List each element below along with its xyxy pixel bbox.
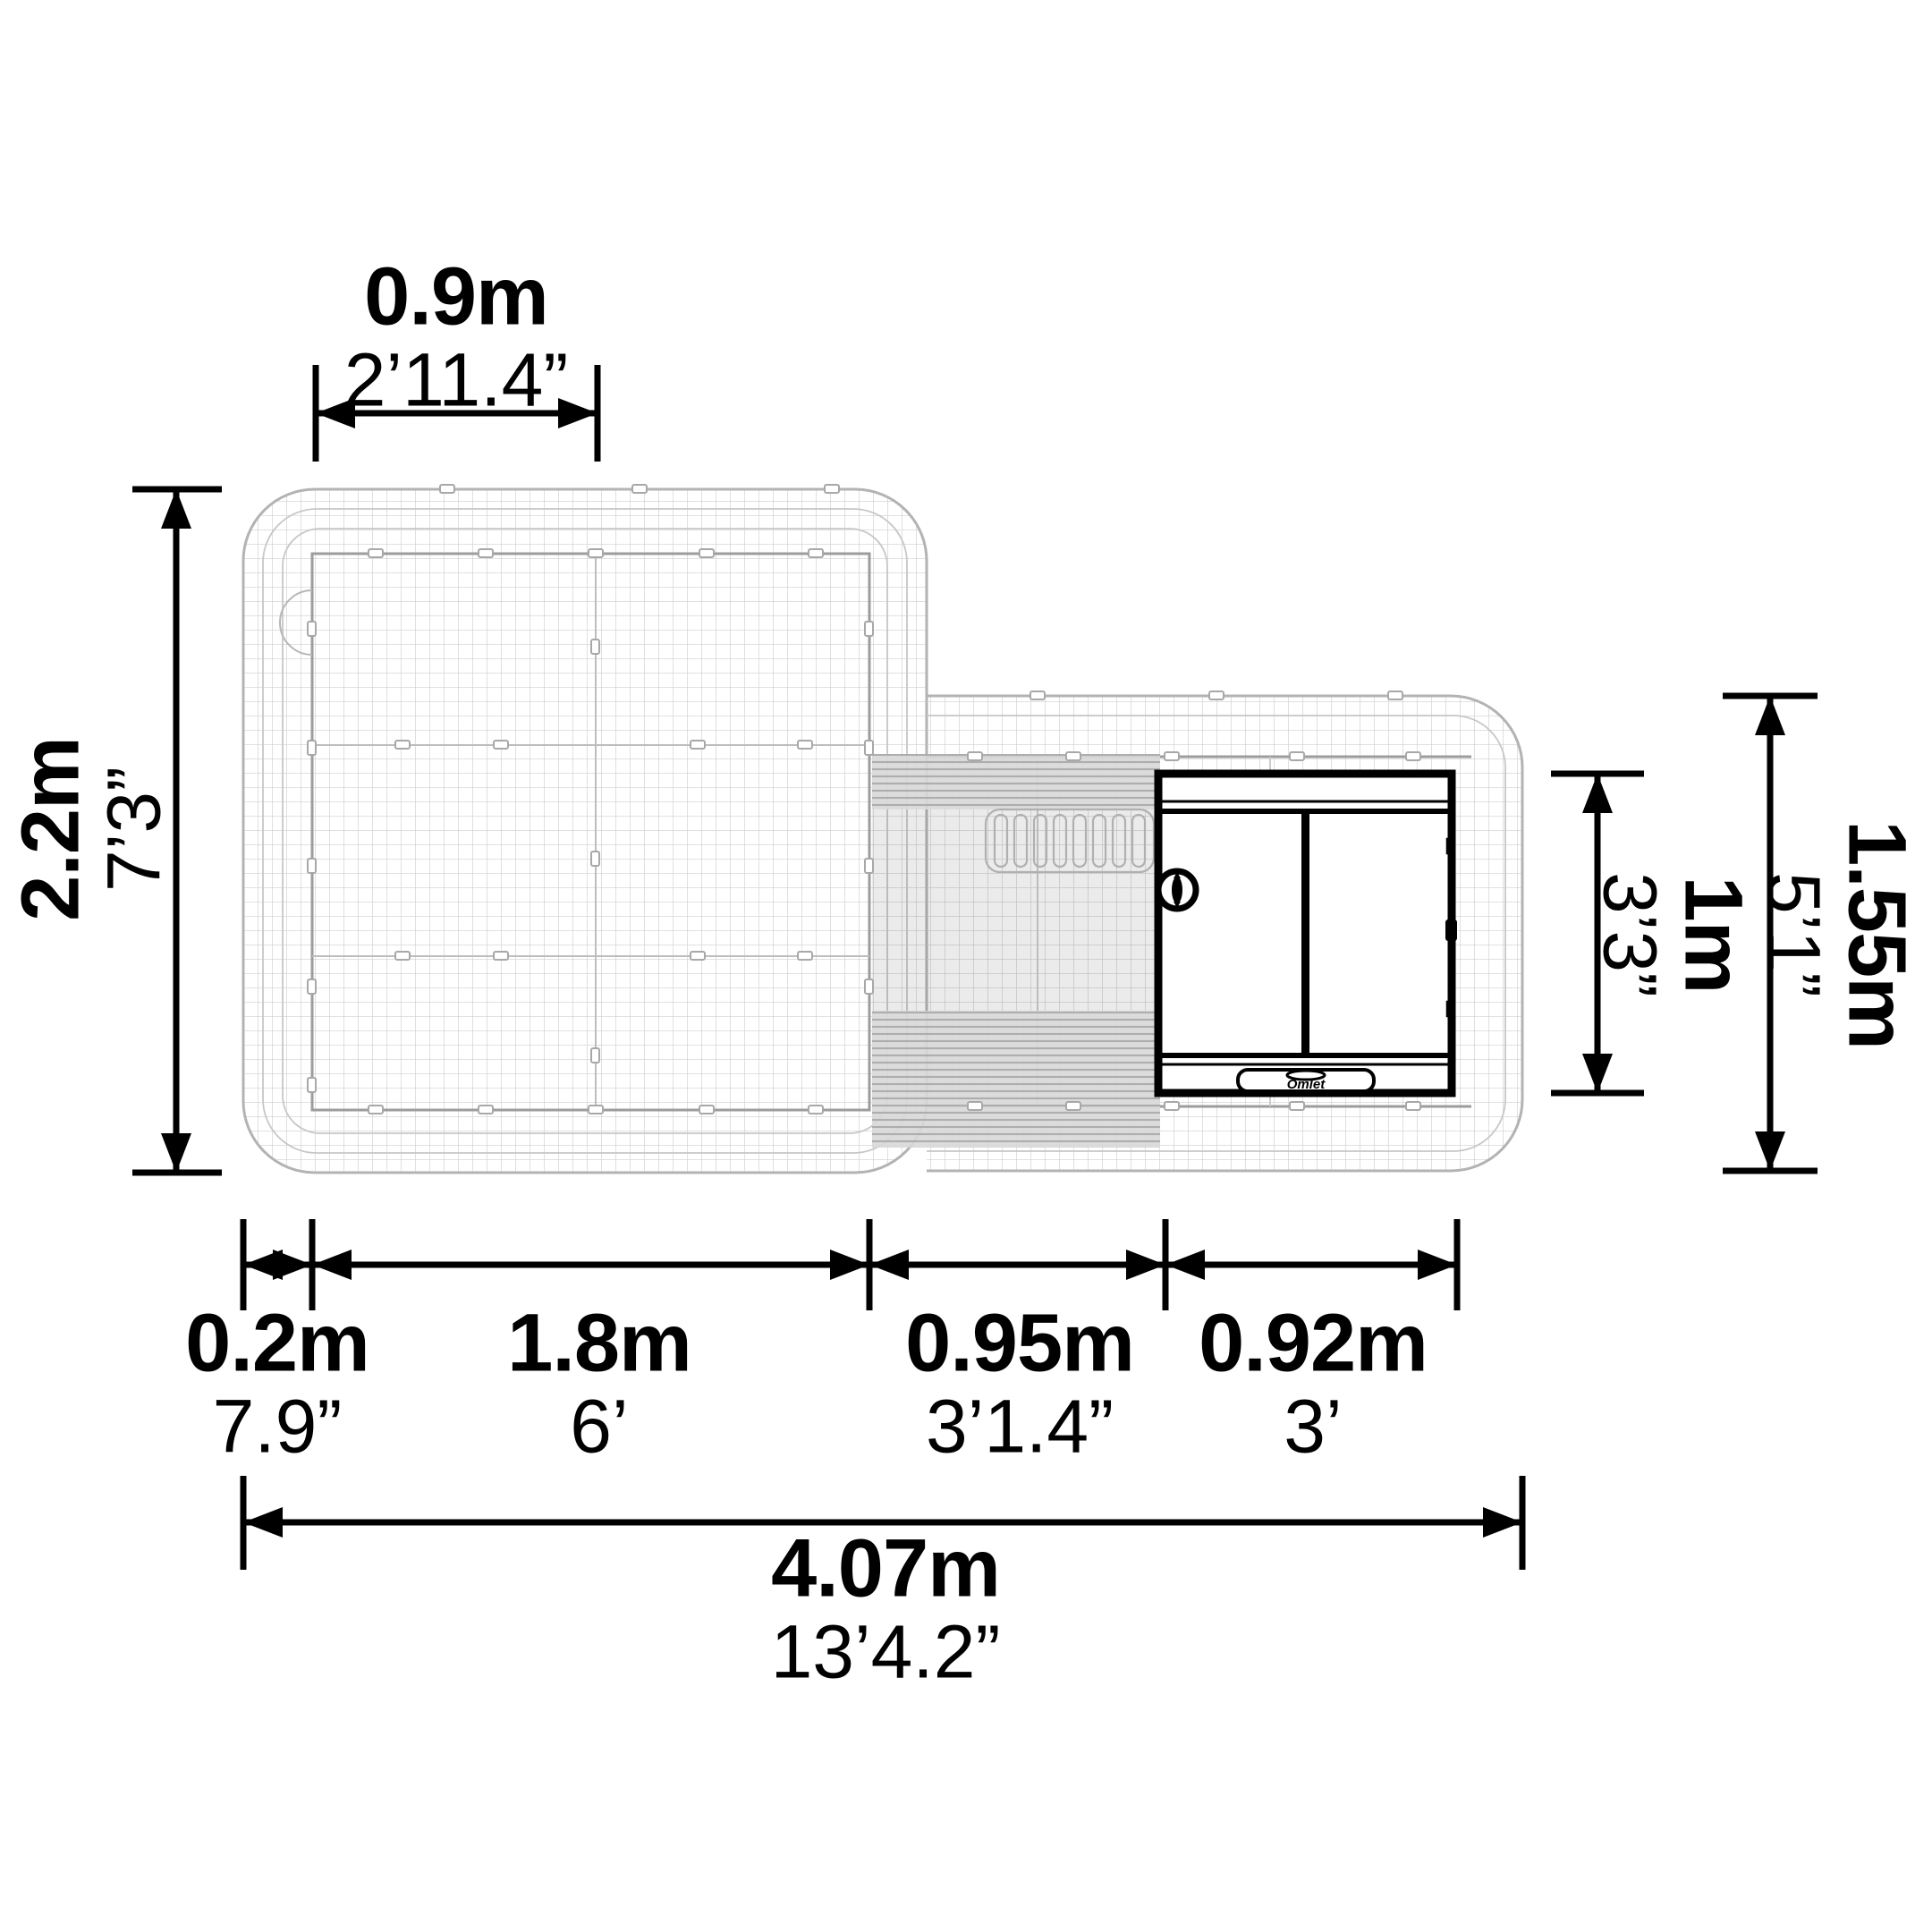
dim-coop-depth: 1m 3’3” (1589, 872, 1755, 997)
dim-segment-connect-metric: 0.95m (905, 1302, 1134, 1386)
dim-segment-run-metric: 1.8m (507, 1302, 691, 1386)
coop-logo: Omlet (1238, 1070, 1374, 1092)
dim-segment-overhang-imperial: 7.9” (185, 1386, 369, 1468)
dim-overall-width: 4.07m 13’4.2” (771, 1528, 1001, 1693)
coop: Omlet (1158, 774, 1457, 1093)
dim-segment-coop-imperial: 3’ (1199, 1386, 1428, 1468)
floor-plan-diagram: Omlet (0, 0, 1932, 1932)
dim-side-height-metric: 1.55m (1834, 820, 1918, 1049)
coop-door-divider (1301, 811, 1309, 1055)
dim-left-height-imperial: 7’3” (94, 737, 175, 921)
dim-segment-overhang-metric: 0.2m (185, 1302, 369, 1386)
dim-top-width-imperial: 2’11.4” (344, 340, 569, 421)
dim-coop-depth-metric: 1m (1670, 872, 1754, 997)
dim-segment-coop: 0.92m 3’ (1199, 1302, 1428, 1468)
dim-top-width: 0.9m 2’11.4” (344, 256, 569, 421)
coop-latch (1445, 919, 1457, 941)
dim-segment-coop-metric: 0.92m (1199, 1302, 1428, 1386)
dim-segment-connect: 0.95m 3’1.4” (905, 1302, 1134, 1468)
dim-overall-width-metric: 4.07m (771, 1528, 1001, 1612)
dim-segment-run-imperial: 6’ (507, 1386, 691, 1468)
dim-coop-depth-imperial: 3’3” (1589, 872, 1671, 997)
coop-logo-text: Omlet (1287, 1077, 1326, 1092)
dim-left-height: 2.2m 7’3” (10, 737, 175, 921)
dim-bottom-segments-arrow (243, 1219, 1457, 1310)
shaded-cover-area (872, 754, 1160, 1148)
coop-lock-icon (1158, 871, 1196, 909)
run-enclosure (243, 489, 927, 1173)
dim-overall-width-imperial: 13’4.2” (771, 1612, 1001, 1693)
dim-segment-run: 1.8m 6’ (507, 1302, 691, 1468)
dim-side-height-imperial: 5’1” (1753, 820, 1835, 1049)
dim-top-width-metric: 0.9m (344, 256, 569, 340)
dim-side-height: 1.55m 5’1” (1753, 820, 1919, 1049)
dim-segment-overhang: 0.2m 7.9” (185, 1302, 369, 1468)
dim-segment-connect-imperial: 3’1.4” (905, 1386, 1134, 1468)
dim-left-height-metric: 2.2m (10, 737, 94, 921)
